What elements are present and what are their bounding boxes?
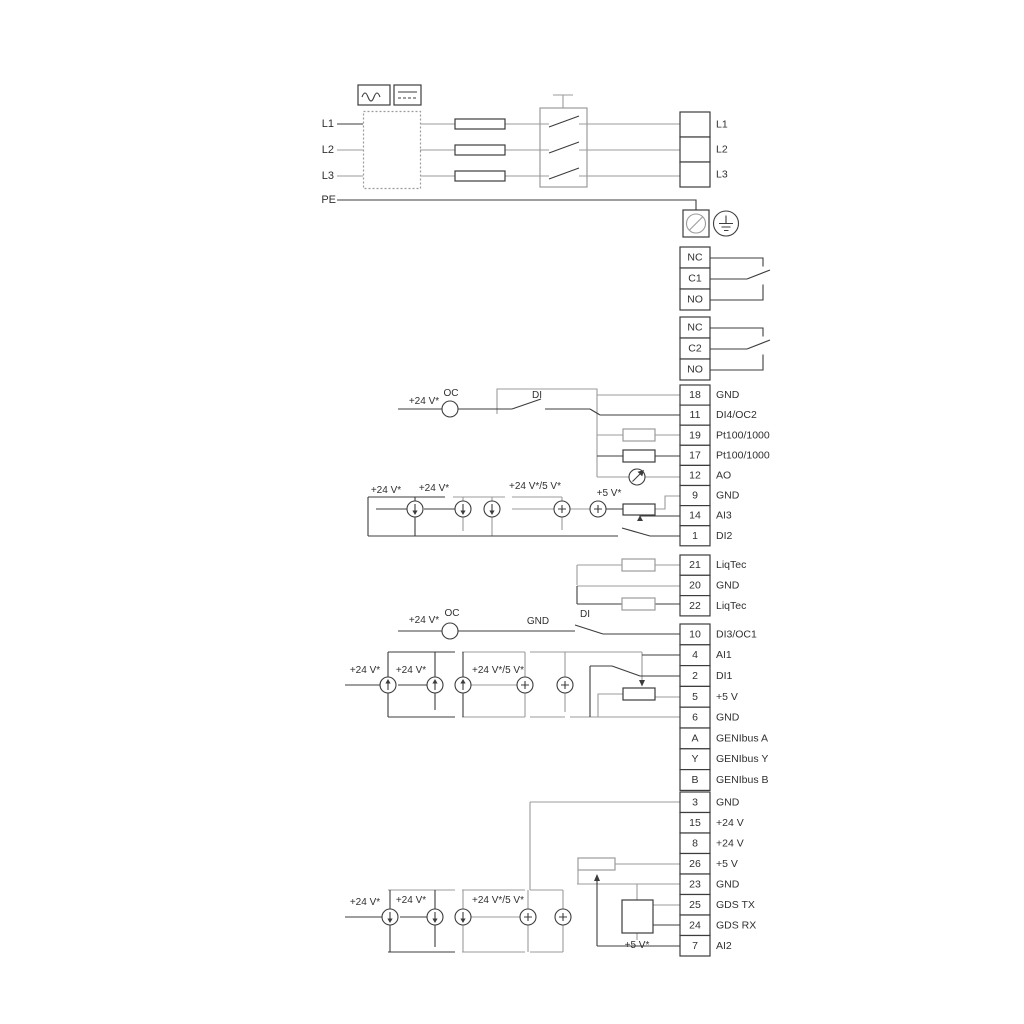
liqtec-wires xyxy=(577,559,680,610)
terminal-label: Pt100/1000 xyxy=(716,429,770,441)
terminal-label: GND xyxy=(716,878,740,890)
terminal-cell-power_output-1 xyxy=(680,137,710,162)
relay-cell-label: NC xyxy=(687,322,703,334)
liqtec-sensor-icon xyxy=(622,598,655,610)
wiper-arrow-icon xyxy=(594,874,600,881)
terminal-number: 9 xyxy=(692,490,698,502)
label-plus24v-5v: +24 V*/5 V* xyxy=(472,665,524,676)
terminal-number: 11 xyxy=(690,409,701,421)
source-plus-icon xyxy=(590,501,606,517)
input-label-pe: PE xyxy=(321,194,336,206)
terminal-number: 22 xyxy=(689,600,701,612)
terminal-number: 19 xyxy=(689,429,701,441)
terminal-block-relay2: NCC2NO xyxy=(680,317,710,380)
label-plus24v: +24 V* xyxy=(350,665,380,676)
oc-circle-icon xyxy=(442,623,458,639)
terminal-block-terminal_block_mid: 18GND11DI4/OC219Pt100/100017Pt100/100012… xyxy=(680,385,770,546)
output-phase-label: L3 xyxy=(716,169,728,181)
earth-ground-icon xyxy=(714,211,739,236)
terminal-label: LiqTec xyxy=(716,600,746,612)
fuse-icon xyxy=(455,119,505,129)
dc-symbol-icon xyxy=(394,85,421,105)
current-source-icon xyxy=(484,501,500,517)
current-source-icon xyxy=(382,909,398,925)
terminal-label: LiqTec xyxy=(716,559,746,571)
terminal-number: 8 xyxy=(692,837,698,849)
relay-cell-label: NC xyxy=(687,252,703,264)
pt100-sensor-icon xyxy=(623,429,655,441)
label-plus5v: +5 V* xyxy=(597,488,622,499)
annotations: L1 L2 L3 PE +24 V* OC DI +24 V* +24 V* +… xyxy=(321,118,649,951)
terminal-number: 15 xyxy=(689,817,701,829)
fuse-icon xyxy=(455,171,505,181)
terminal-label: GND xyxy=(716,490,740,502)
terminal-label: +5 V xyxy=(716,691,738,703)
terminal-label: +24 V xyxy=(716,837,744,849)
bottom-group-wires xyxy=(345,802,680,952)
terminal-label: DI3/OC1 xyxy=(716,628,757,640)
terminal-label: AI3 xyxy=(716,510,732,522)
label-di: DI xyxy=(532,390,542,401)
source-plus-icon xyxy=(557,677,573,693)
fuse-icon xyxy=(455,145,505,155)
gds-module-box xyxy=(622,900,653,933)
terminal-label: GND xyxy=(716,389,740,401)
io-mid-wires xyxy=(398,389,680,485)
label-plus24v: +24 V* xyxy=(419,483,449,494)
terminal-number: B xyxy=(691,774,698,786)
terminal-label: GENIbus B xyxy=(716,774,769,786)
terminal-block-power_output: L1L2L3 xyxy=(680,112,728,187)
terminal-number: 5 xyxy=(692,691,698,703)
power-section-wires xyxy=(337,85,739,237)
terminal-number: 12 xyxy=(689,469,701,481)
terminal-label: +5 V xyxy=(716,858,738,870)
current-source-icon xyxy=(455,909,471,925)
terminal-block-terminal_block_liqtec: 21LiqTec20GND22LiqTec xyxy=(680,555,746,616)
potentiometer-icon xyxy=(578,858,615,870)
terminal-number: 18 xyxy=(689,389,701,401)
terminal-number: 4 xyxy=(692,649,698,661)
label-plus24v-5v: +24 V*/5 V* xyxy=(509,481,561,492)
relay-contact-icon xyxy=(710,258,770,370)
current-source-icon xyxy=(380,677,396,693)
output-phase-label: L1 xyxy=(716,119,728,131)
terminal-number: 21 xyxy=(689,559,701,571)
pt100-sensor-icon xyxy=(623,450,655,462)
label-plus5v: +5 V* xyxy=(625,940,650,951)
terminal-label: AI1 xyxy=(716,649,732,661)
terminal-number: Y xyxy=(691,753,698,765)
terminal-label: GENIbus Y xyxy=(716,753,768,765)
terminal-number: 2 xyxy=(692,670,698,682)
terminal-label: GND xyxy=(716,579,740,591)
terminal-blocks: L1L2L3NCC1NONCC2NO18GND11DI4/OC219Pt100/… xyxy=(680,112,770,956)
label-plus24v: +24 V* xyxy=(371,485,401,496)
terminal-number: 6 xyxy=(692,712,698,724)
terminal-block-terminal_block_low: 10DI3/OC14AI12DI15+5 V6GNDAGENIbus AYGEN… xyxy=(680,624,769,790)
relay-cell-label: C2 xyxy=(688,343,702,355)
terminal-cell-power_output-2 xyxy=(680,162,710,187)
wiper-arrow-icon xyxy=(639,680,645,687)
emc-filter-box xyxy=(364,112,421,189)
terminal-block-terminal_block_bottom: 3GND15+24 V8+24 V26+5 V23GND25GDS TX24GD… xyxy=(680,792,756,956)
input-label-l1: L1 xyxy=(322,118,334,130)
terminal-label: GND xyxy=(716,712,740,724)
terminal-number: 24 xyxy=(689,919,701,931)
terminal-label: AO xyxy=(716,469,731,481)
label-plus24v: +24 V* xyxy=(409,615,439,626)
source-plus-icon xyxy=(555,909,571,925)
terminal-number: 17 xyxy=(689,449,701,461)
terminal-number: 10 xyxy=(689,628,701,640)
terminal-label: GND xyxy=(716,796,740,808)
relay-cell-label: C1 xyxy=(688,273,702,285)
label-oc: OC xyxy=(444,388,459,399)
terminal-label: AI2 xyxy=(716,940,732,952)
source-plus-icon xyxy=(517,677,533,693)
current-source-icon xyxy=(455,677,471,693)
terminal-number: 1 xyxy=(692,530,698,542)
label-plus24v: +24 V* xyxy=(396,895,426,906)
ao-meter-icon xyxy=(629,469,645,485)
current-source-icon xyxy=(427,909,443,925)
terminal-label: GDS TX xyxy=(716,899,755,911)
wiring-diagram: L1L2L3NCC1NONCC2NO18GND11DI4/OC219Pt100/… xyxy=(0,0,1024,1024)
terminal-number: 3 xyxy=(692,796,698,808)
terminal-number: 26 xyxy=(689,858,701,870)
terminal-block-relay1: NCC1NO xyxy=(680,247,710,310)
oc-circle-icon xyxy=(442,401,458,417)
terminal-number: 25 xyxy=(689,899,701,911)
terminal-number: 14 xyxy=(689,510,701,522)
input-label-l2: L2 xyxy=(322,144,334,156)
wiring-diagram-svg: L1L2L3NCC1NONCC2NO18GND11DI4/OC219Pt100/… xyxy=(0,0,1024,1024)
terminal-label: GENIbus A xyxy=(716,732,768,744)
current-source-icon xyxy=(455,501,471,517)
liqtec-sensor-icon xyxy=(622,559,655,571)
terminal-cell-power_output-0 xyxy=(680,112,710,137)
current-source-icon xyxy=(407,501,423,517)
terminal-label: DI2 xyxy=(716,530,733,542)
terminal-number: A xyxy=(691,732,698,744)
terminal-label: DI4/OC2 xyxy=(716,409,757,421)
source-symbols xyxy=(380,501,606,925)
terminal-number: 7 xyxy=(692,940,698,952)
label-plus24v: +24 V* xyxy=(409,396,439,407)
potentiometer-icon xyxy=(623,504,655,515)
source-plus-icon xyxy=(554,501,570,517)
output-phase-label: L2 xyxy=(716,144,728,156)
label-gnd: GND xyxy=(527,616,549,627)
terminal-label: +24 V xyxy=(716,817,744,829)
relay-cell-label: NO xyxy=(687,364,703,376)
source-plus-icon xyxy=(520,909,536,925)
current-source-icon xyxy=(427,677,443,693)
potentiometer-icon xyxy=(623,688,655,700)
label-plus24v-5v: +24 V*/5 V* xyxy=(472,895,524,906)
terminal-label: GDS RX xyxy=(716,919,756,931)
input-label-l3: L3 xyxy=(322,170,334,182)
terminal-number: 23 xyxy=(689,878,701,890)
relay-cell-label: NO xyxy=(687,294,703,306)
label-plus24v: +24 V* xyxy=(396,665,426,676)
label-oc: OC xyxy=(445,608,460,619)
terminal-number: 20 xyxy=(689,579,701,591)
label-di: DI xyxy=(580,609,590,620)
terminal-label: Pt100/1000 xyxy=(716,449,770,461)
label-plus24v: +24 V* xyxy=(350,897,380,908)
terminal-label: DI1 xyxy=(716,670,733,682)
